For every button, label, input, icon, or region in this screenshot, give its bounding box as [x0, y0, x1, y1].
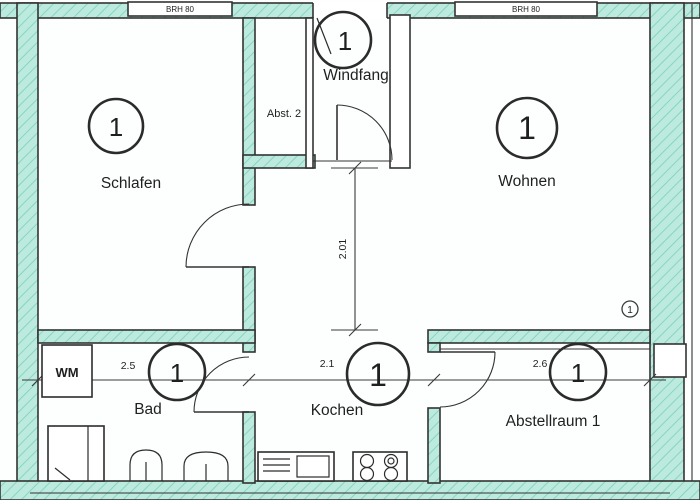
window-top-right-label: BRH 80 [512, 5, 541, 14]
schlafen-bad-wall [38, 330, 255, 343]
room-label-schlafen: Schlafen [101, 175, 161, 192]
left-wall [17, 3, 38, 483]
room-number-windfang: 1 [338, 26, 352, 56]
abstellraum-width-dim: 2.6 [533, 358, 548, 370]
bottom-wall-band [0, 481, 700, 500]
windfang-wohnen-wall [390, 15, 410, 168]
schlafen-door-swing [186, 204, 249, 267]
right-wall [650, 3, 684, 483]
washing-machine-label: WM [55, 365, 78, 380]
shower [48, 426, 104, 481]
room-number-bad: 1 [170, 358, 184, 388]
room-label-abstellraum: Abstellraum 1 [506, 413, 601, 430]
abstellraum-top-wall [428, 330, 650, 343]
room-number-abstellraum: 1 [571, 358, 585, 388]
floorplan-canvas: BRH 80 BRH 80 [0, 0, 700, 500]
room-label-kochen: Kochen [311, 402, 364, 419]
mid-wall-upper [243, 18, 255, 205]
room-label-wohnen: Wohnen [498, 173, 555, 190]
room-number-kochen: 1 [369, 357, 387, 393]
abst2-windfang-partition [306, 18, 313, 168]
kochen-width-dim: 2.1 [320, 358, 335, 370]
windfang-door-swing [337, 105, 392, 160]
room-label-abst2: Abst. 2 [267, 108, 301, 120]
kochen-fixtures [258, 452, 407, 481]
mid-wall-lower [243, 412, 255, 483]
flur-depth-dim: 2.01 [337, 239, 349, 260]
kochen-abstellraum-wall-stub [428, 343, 440, 352]
wall-marker-label: 1 [627, 305, 633, 316]
room-label-bad: Bad [134, 401, 162, 418]
room-label-windfang: Windfang [323, 67, 388, 84]
room-number-wohnen: 1 [518, 110, 536, 146]
dimension-lines: 2.5 2.1 2.6 2.01 [22, 162, 666, 386]
bad-width-dim: 2.5 [121, 360, 136, 372]
room-labels: 1 Schlafen 1 Windfang 1 Wohnen Abst. 2 1… [89, 12, 638, 430]
entrance-gap [313, 1, 387, 19]
kochen-abstellraum-wall-lower [428, 408, 440, 483]
room-number-schlafen: 1 [109, 112, 123, 142]
abstellraum-right-opening [654, 344, 686, 377]
floorplan-drawing: BRH 80 BRH 80 [0, 0, 700, 500]
abst2-bottom-wall [243, 155, 315, 168]
window-top-left-label: BRH 80 [166, 5, 195, 14]
